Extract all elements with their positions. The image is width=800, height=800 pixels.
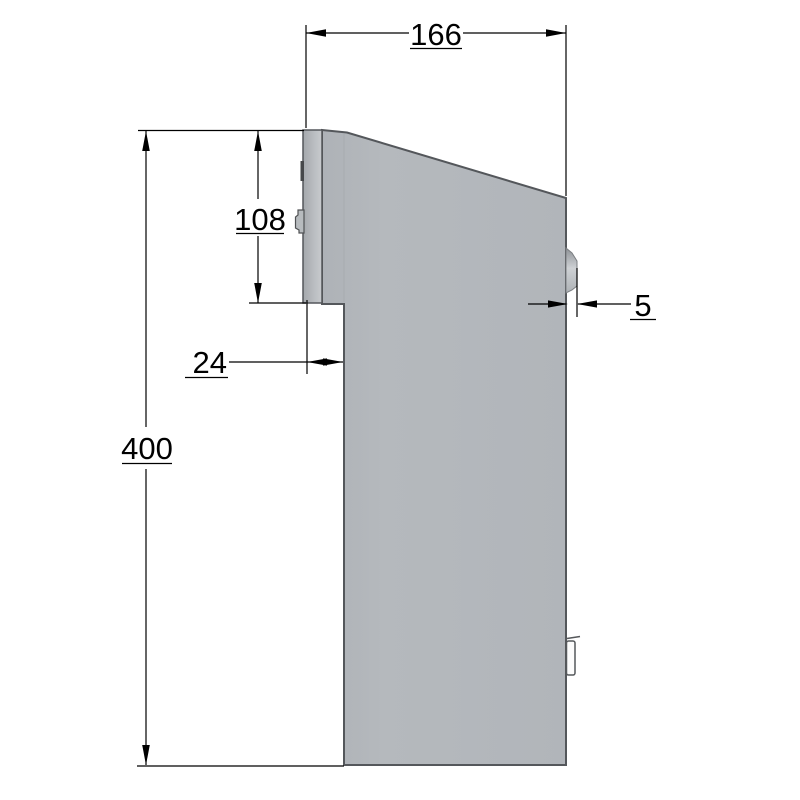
mounting-clip xyxy=(296,210,305,233)
dim-panel-height: 108 xyxy=(138,131,306,304)
arrow-right-icon xyxy=(323,358,343,365)
drawing-canvas: 166 108 400 xyxy=(0,0,800,800)
mail-slot-mark xyxy=(301,161,305,181)
dim-label-panel-offset: 24 xyxy=(193,345,227,380)
arrow-left-icon xyxy=(577,300,597,307)
dim-label-lock-protrusion: 5 xyxy=(634,288,651,323)
dim-label-panel-height: 108 xyxy=(234,202,286,237)
arrow-down-icon xyxy=(254,283,262,303)
technical-drawing-svg: 166 108 400 xyxy=(0,0,800,800)
dim-panel-offset: 24 xyxy=(185,300,343,380)
front-flange-panel xyxy=(303,130,322,303)
latch-pin-icon xyxy=(567,637,580,639)
dim-label-overall-height: 400 xyxy=(121,431,173,466)
arrow-up-icon xyxy=(254,131,262,151)
dim-label-top-width: 166 xyxy=(410,17,462,52)
arrow-down-icon xyxy=(142,745,150,765)
arrow-left-icon xyxy=(306,29,326,37)
arrow-right-icon xyxy=(546,29,566,37)
arrow-up-icon xyxy=(142,131,150,151)
cabinet-body xyxy=(322,130,566,765)
latch-detail xyxy=(567,641,576,675)
lock-bump xyxy=(566,248,577,293)
